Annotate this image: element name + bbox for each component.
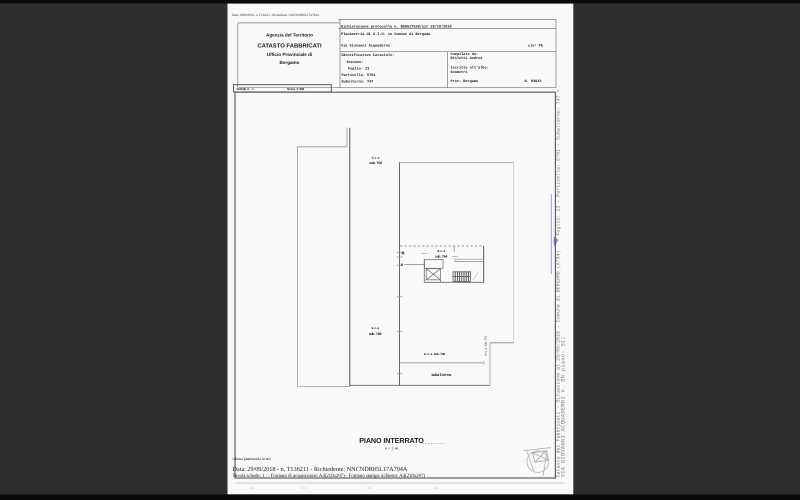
svg-text:sub.760: sub.760 [369,332,382,337]
svg-text:m.c.a sub.751: m.c.a sub.751 [484,335,488,355]
svg-text:H = 2.40: H = 2.40 [385,447,398,451]
svg-text:sub.750: sub.750 [369,161,382,166]
svg-text:Identificativo Catastale:: Identificativo Catastale: [341,53,394,58]
svg-text:Data: 29/09/2018 - n. T136211: Data: 29/09/2018 - n. T136211 - Richiede… [232,13,320,17]
svg-text:Prov: Bergamo: Prov: Bergamo [451,79,479,84]
svg-text:m.c.a: m.c.a [437,250,445,253]
svg-text:Sezione:: Sezione: [347,60,364,65]
svg-text:Ultima planimetria in atti: Ultima planimetria in atti [232,457,270,461]
svg-text:Agenzia del Territorio: Agenzia del Territorio [266,33,313,38]
svg-text:Planimetria di U.I.U. in Comun: Planimetria di U.I.U. in Comune di Berga… [341,32,430,37]
svg-text:m.c.a: m.c.a [372,156,380,159]
svg-text:Dichiarazione protocollo n. BG: Dichiarazione protocollo n. BG0517528/sz… [341,25,452,30]
svg-text:m.c.a sub.746: m.c.a sub.746 [424,352,445,356]
svg-text:Scala 1:200: Scala 1:200 [287,87,305,91]
svg-text:Foglio: 13: Foglio: 13 [348,66,369,71]
svg-text:sub.764: sub.764 [435,255,447,260]
svg-text:Scheda n. 1: Scheda n. 1 [237,87,255,91]
svg-text:Broletti Andrea: Broletti Andrea [451,56,484,61]
svg-text:Particella: 5701: Particella: 5701 [342,73,376,78]
svg-text:m.c.a: m.c.a [371,327,379,330]
svg-text:Subalterno: 747: Subalterno: 747 [342,79,374,84]
svg-text:Geometri: Geometri [451,70,468,75]
svg-text:Ufficio Provinciale di: Ufficio Provinciale di [267,52,312,57]
svg-text:Bergamo: Bergamo [280,60,300,65]
svg-text:Tavola schede: 1 : - Formato d: Tavola schede: 1 : - Formato di acquisiz… [232,473,425,479]
svg-text:Data: 29/09/2018 - n. T136211: Data: 29/09/2018 - n. T136211 - Richiede… [232,466,407,473]
svg-text:VIA GIOVANNI ACQUADERNI n. SN: VIA GIOVANNI ACQUADERNI n. SN piano: S1; [560,336,566,477]
svg-text:CATASTO FABBRICATI: CATASTO FABBRICATI [257,42,322,49]
svg-text:Via Giovanni Acquaderni: Via Giovanni Acquaderni [341,43,390,48]
svg-text:N. 03643: N. 03643 [525,79,542,84]
svg-text:civ/ PE: civ/ PE [528,43,543,48]
svg-text:PIANO INTERRATO: PIANO INTERRATO [359,436,424,445]
svg-text:subalterno: subalterno [431,373,452,378]
